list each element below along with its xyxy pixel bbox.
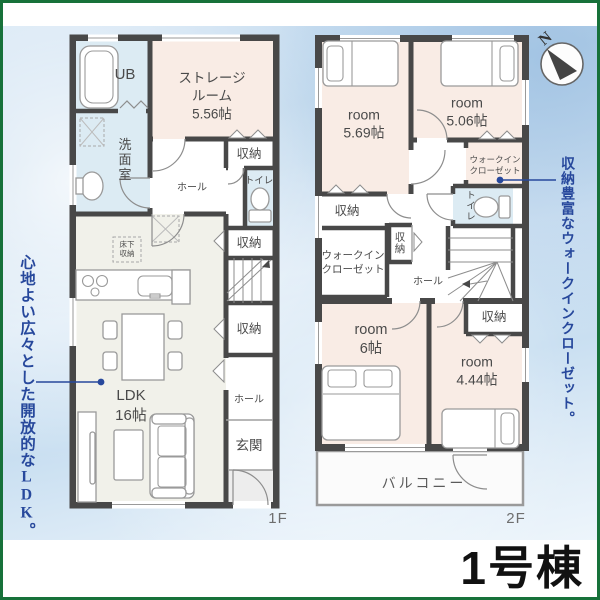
closet-br-label: 収納 (481, 309, 506, 326)
label-line: ウォークイン (469, 154, 520, 165)
label-line: 収納 (394, 232, 406, 255)
underfloor-storage-label: 床下 収納 (120, 240, 135, 258)
label-line: ホール (413, 275, 443, 288)
label-line: 5.06帖 (446, 112, 487, 130)
wic-right-label: ウォークイン クローゼット (469, 154, 520, 175)
label-line: クローゼット (322, 263, 385, 277)
storage-room-label: ストレージ ルーム 5.56帖 (178, 69, 245, 122)
hall-lower-label: ホール (234, 393, 264, 406)
toilet-label-2f: トイレ (462, 190, 476, 222)
label-line: 5.56帖 (178, 105, 245, 123)
label-line: 6帖 (354, 340, 387, 359)
ub-label: UB (115, 65, 136, 85)
closet-a-label: 収納 (236, 146, 261, 163)
label-line: クローゼット (469, 165, 520, 176)
closet-c-label: 収納 (236, 321, 261, 338)
label-line: 5.69帖 (343, 124, 384, 142)
label-line: 収納 (236, 235, 261, 252)
leader-dot-wic (497, 177, 504, 184)
label-line: 収納 (120, 249, 135, 258)
closet-mid-label: 収納 (393, 232, 408, 255)
toilet-icon-2f (474, 196, 510, 218)
ldk-label: LDK 16帖 (115, 386, 147, 426)
room-506-label: room 5.06帖 (446, 94, 487, 131)
label-line: 1F (268, 509, 288, 529)
label-line: ストレージ (178, 69, 245, 87)
compass-icon: N (536, 28, 583, 85)
label-line: 収納 (481, 309, 506, 326)
bed-icon-569 (323, 41, 398, 86)
toilet-icon-1f (249, 188, 271, 222)
hall-2f-label: ホール (413, 275, 443, 288)
label-line: トイレ (245, 176, 274, 189)
label-line: 4.44帖 (456, 371, 497, 389)
toilet-label-1f: トイレ (245, 176, 274, 189)
label-line: ホール (234, 393, 264, 406)
balcony-label: バルコニー (382, 474, 467, 492)
sofa-icon (150, 414, 194, 498)
label-line: ウォークイン (322, 249, 385, 263)
floor1-label: 1F (268, 509, 288, 529)
bed-icon-6 (322, 366, 400, 440)
entrance-label: 玄関 (236, 437, 263, 455)
label-line: ホール (177, 181, 207, 194)
label-line: トイレ (464, 190, 475, 222)
label-line: room (456, 353, 497, 371)
floorplan-page: N UB ストレージ ルーム 5.56帖 洗面室 ホール トイレ 収納 収納 収… (0, 0, 600, 600)
label-line: UB (115, 65, 136, 85)
bed-icon-444 (442, 409, 519, 448)
kitchen-counter-icon (76, 270, 190, 304)
hall-upper-label: ホール (177, 181, 207, 194)
label-line: 2F (506, 509, 526, 529)
label-line: ルーム (178, 87, 245, 105)
room-6-label: room 6帖 (354, 321, 387, 359)
label-line: 床下 (120, 240, 135, 249)
floor2-label: 2F (506, 509, 526, 529)
washroom-label: 洗面室 (115, 138, 134, 183)
bathtub-icon (80, 46, 118, 108)
label-line: 収納 (334, 203, 359, 220)
annotation-ldk: 心地よい広々とした開放的なLDK。 (15, 254, 37, 539)
closet-tl-label: 収納 (334, 203, 359, 220)
room-569-label: room 5.69帖 (343, 106, 384, 143)
label-line: 16帖 (115, 406, 147, 426)
label-line: room (354, 321, 387, 340)
label-line: 洗面室 (117, 138, 132, 183)
room-444-label: room 4.44帖 (456, 353, 497, 390)
label-line: 収納 (236, 146, 261, 163)
annotation-wic: 収納豊富なウォークインクローゼット。 (556, 156, 576, 426)
building-title: 1号棟 (460, 545, 584, 591)
label-line: room (343, 106, 384, 124)
label-line: LDK (115, 386, 147, 406)
label-line: room (446, 94, 487, 112)
wic-left-label: ウォークイン クローゼット (322, 249, 385, 276)
leader-dot-ldk (98, 379, 105, 386)
tv-board-icon (78, 412, 96, 502)
bed-icon-506 (441, 41, 518, 86)
label-line: バルコニー (382, 474, 467, 492)
label-line: 玄関 (236, 437, 263, 455)
label-line: 収納 (236, 321, 261, 338)
closet-b-label: 収納 (236, 235, 261, 252)
coffee-table-icon (114, 430, 143, 480)
